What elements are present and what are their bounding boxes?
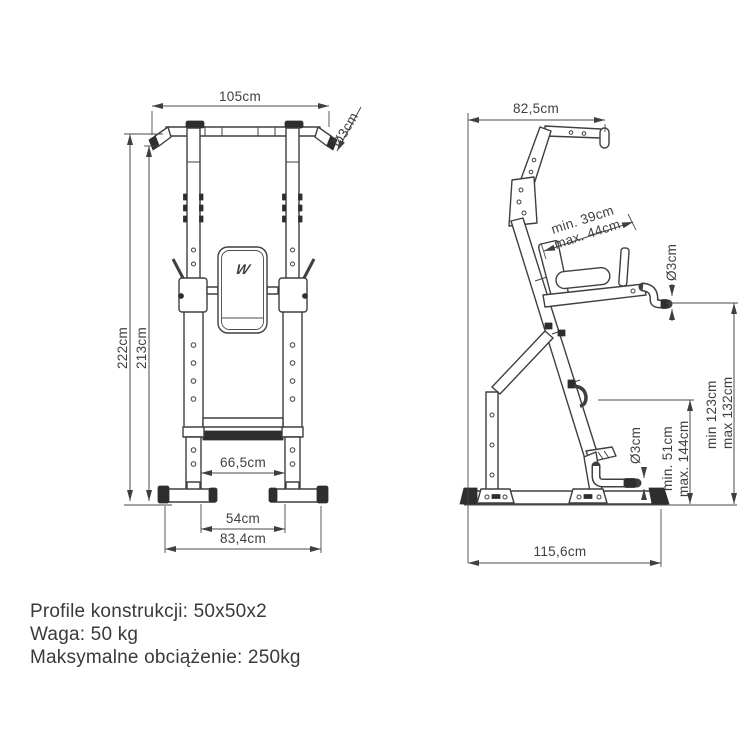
- dim-dip-height-min-label: min 123cm: [704, 380, 719, 449]
- dim-step-height-min-label: min. 51cm: [660, 426, 675, 491]
- cross-bar-lower: [203, 431, 283, 440]
- bar-clamp-left: [186, 121, 204, 128]
- diagram-page: W: [0, 0, 750, 750]
- spec-profile: Profile konstrukcji: 50x50x2: [30, 600, 301, 623]
- front-view: W: [115, 89, 361, 553]
- side-view: 82,5cm min. 39cm max. 44cm Ø3cm min 123c…: [460, 101, 738, 567]
- dip-handle-cap: [661, 300, 668, 309]
- dim-base-width-label: 83,4cm: [220, 531, 266, 546]
- dim-step-bar-diameter-label: Ø3cm: [628, 427, 643, 464]
- dip-post: [619, 248, 630, 286]
- dim-dip-bar-diameter-label: Ø3cm: [664, 244, 679, 281]
- foot-right: [271, 489, 318, 502]
- base-feet: [158, 482, 328, 503]
- dim-foot-inner-width-label: 54cm: [226, 511, 260, 526]
- backrest-bar-left: [207, 287, 218, 294]
- foot-bar-cap: [624, 479, 636, 488]
- dim-dip-height-max-label: max 132cm: [720, 377, 735, 449]
- dim-total-height-label: 222cm: [115, 327, 130, 369]
- cross-bar-upper: [203, 418, 283, 427]
- dim-step-height-max-label: max. 144cm: [676, 420, 691, 497]
- dim-top-depth-label: 82,5cm: [513, 101, 559, 116]
- dim-bar-diameter-label: Ø3cm: [330, 110, 362, 150]
- latch-lever-left: [173, 259, 184, 280]
- pullup-bar: [149, 121, 337, 150]
- pullup-grip-side: [600, 128, 609, 148]
- base-cap-rear: [460, 488, 477, 504]
- latch-lever-right: [303, 259, 314, 280]
- lower-frame: [183, 418, 303, 488]
- rear-strut: [492, 331, 553, 394]
- foot-cap-right-outer: [317, 486, 328, 503]
- foot-cap-left-outer: [158, 486, 169, 503]
- spec-max-load: Maksymalne obciążenie: 250kg: [30, 646, 301, 669]
- spec-text-block: Profile konstrukcji: 50x50x2 Waga: 50 kg…: [30, 600, 301, 669]
- dim-base-depth-label: 115,6cm: [534, 544, 587, 559]
- dim-inner-width-label: 66,5cm: [220, 455, 266, 470]
- adjustment-knobs: [184, 194, 303, 222]
- foot-left: [168, 489, 215, 502]
- backrest-pad: [218, 247, 267, 333]
- bar-clamp-right: [285, 121, 303, 128]
- dim-top-width-label: 105cm: [219, 89, 261, 104]
- backrest-bar-right: [267, 287, 278, 294]
- dim-bar-height-label: 213cm: [134, 327, 149, 369]
- spec-weight: Waga: 50 kg: [30, 623, 301, 646]
